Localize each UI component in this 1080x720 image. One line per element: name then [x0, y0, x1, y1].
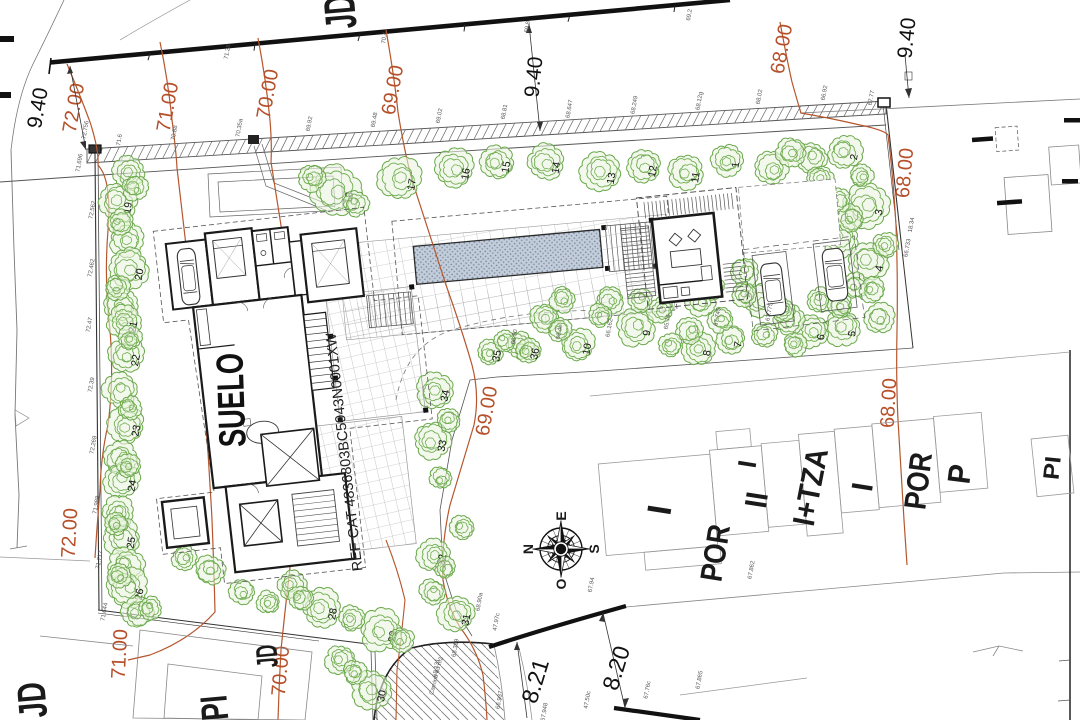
- svg-text:11: 11: [689, 171, 703, 184]
- svg-text:JD: JD: [314, 0, 366, 31]
- svg-text:24: 24: [126, 479, 140, 493]
- svg-text:9.40: 9.40: [520, 55, 547, 98]
- svg-text:JD: JD: [251, 643, 286, 669]
- svg-text:10: 10: [580, 342, 594, 356]
- svg-text:9.40: 9.40: [893, 16, 920, 59]
- svg-text:14: 14: [550, 161, 564, 175]
- svg-text:31: 31: [460, 613, 474, 627]
- svg-text:JD: JD: [10, 680, 57, 719]
- svg-text:E: E: [553, 511, 569, 520]
- svg-text:SUELO: SUELO: [209, 352, 255, 448]
- svg-text:68.00: 68.00: [877, 377, 902, 428]
- svg-text:13: 13: [605, 171, 619, 185]
- svg-text:PI: PI: [192, 694, 237, 720]
- svg-text:22: 22: [129, 353, 143, 367]
- svg-text:12: 12: [646, 164, 660, 178]
- svg-text:17: 17: [405, 178, 419, 192]
- svg-text:71.00: 71.00: [108, 628, 133, 679]
- svg-text:S: S: [586, 544, 602, 553]
- svg-text:PI: PI: [1039, 455, 1066, 481]
- svg-text:28: 28: [326, 607, 340, 621]
- svg-text:20: 20: [133, 267, 147, 281]
- svg-text:16: 16: [459, 167, 473, 181]
- svg-text:72.00: 72.00: [58, 507, 83, 558]
- svg-text:68.00: 68.00: [892, 147, 918, 199]
- svg-text:O: O: [553, 578, 569, 589]
- svg-text:POR: POR: [898, 450, 939, 511]
- svg-text:23: 23: [130, 424, 144, 438]
- svg-text:34: 34: [439, 389, 453, 403]
- svg-text:30: 30: [375, 689, 389, 703]
- svg-text:N: N: [520, 544, 536, 554]
- svg-text:36: 36: [528, 347, 542, 361]
- svg-text:15: 15: [499, 160, 513, 174]
- svg-text:33: 33: [436, 439, 450, 453]
